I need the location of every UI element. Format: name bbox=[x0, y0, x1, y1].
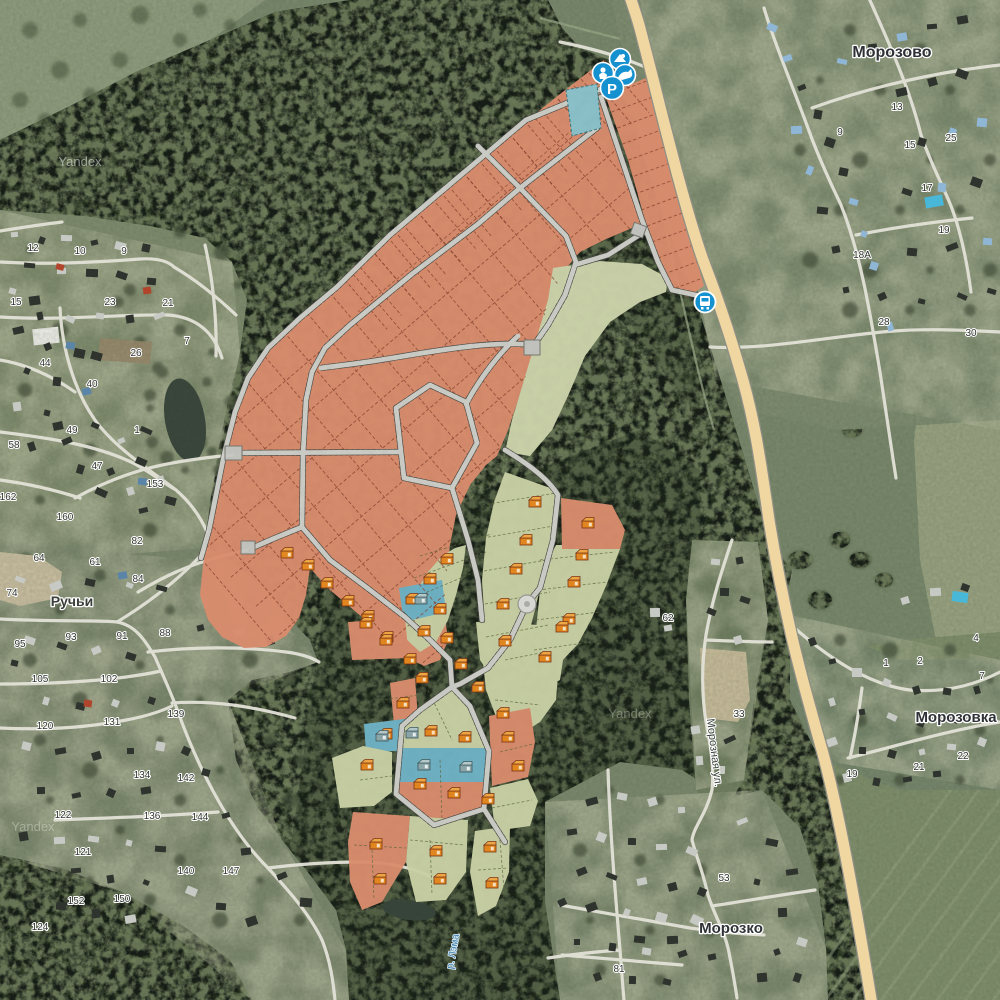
svg-text:91: 91 bbox=[116, 631, 128, 642]
svg-text:Yandex: Yandex bbox=[11, 819, 55, 834]
svg-text:40: 40 bbox=[86, 379, 98, 390]
svg-text:21: 21 bbox=[913, 762, 925, 773]
svg-text:Морозко: Морозко bbox=[699, 920, 763, 937]
svg-text:9: 9 bbox=[837, 127, 843, 138]
svg-text:95: 95 bbox=[14, 639, 26, 650]
svg-text:2: 2 bbox=[917, 656, 923, 667]
svg-text:142: 142 bbox=[178, 773, 195, 784]
svg-text:140: 140 bbox=[178, 866, 195, 877]
svg-text:19: 19 bbox=[938, 225, 950, 236]
svg-text:9: 9 bbox=[121, 246, 127, 257]
svg-text:124: 124 bbox=[32, 922, 49, 933]
svg-text:53: 53 bbox=[718, 873, 730, 884]
svg-text:102: 102 bbox=[101, 674, 118, 685]
svg-text:30: 30 bbox=[965, 328, 977, 339]
svg-text:147: 147 bbox=[223, 866, 240, 877]
svg-text:33: 33 bbox=[733, 709, 745, 720]
svg-text:144: 144 bbox=[192, 812, 209, 823]
svg-text:10: 10 bbox=[74, 246, 86, 257]
svg-text:17: 17 bbox=[921, 183, 933, 194]
svg-text:12: 12 bbox=[27, 243, 39, 254]
svg-text:1: 1 bbox=[883, 658, 889, 669]
svg-text:121: 121 bbox=[75, 847, 92, 858]
svg-text:136: 136 bbox=[144, 811, 161, 822]
svg-text:1: 1 bbox=[134, 425, 140, 436]
svg-text:7: 7 bbox=[184, 336, 190, 347]
svg-text:58: 58 bbox=[8, 440, 20, 451]
svg-text:44: 44 bbox=[39, 358, 51, 369]
svg-text:13: 13 bbox=[891, 102, 903, 113]
svg-text:15: 15 bbox=[904, 140, 916, 151]
svg-text:134: 134 bbox=[134, 770, 151, 781]
svg-text:82: 82 bbox=[131, 536, 143, 547]
svg-text:15: 15 bbox=[10, 297, 22, 308]
svg-text:105: 105 bbox=[32, 674, 49, 685]
svg-text:21: 21 bbox=[162, 298, 174, 309]
svg-text:Yandex: Yandex bbox=[58, 154, 102, 169]
svg-text:62: 62 bbox=[662, 613, 674, 624]
svg-text:61: 61 bbox=[89, 557, 101, 568]
svg-text:153: 153 bbox=[147, 479, 164, 490]
svg-text:122: 122 bbox=[55, 810, 72, 821]
svg-text:18А: 18А bbox=[853, 250, 871, 261]
svg-text:47: 47 bbox=[91, 461, 103, 472]
svg-text:93: 93 bbox=[65, 632, 77, 643]
svg-text:88: 88 bbox=[159, 628, 171, 639]
svg-text:162: 162 bbox=[0, 492, 17, 503]
svg-text:25: 25 bbox=[945, 133, 957, 144]
svg-text:160: 160 bbox=[57, 512, 74, 523]
svg-text:150: 150 bbox=[114, 894, 131, 905]
svg-text:Морозовка: Морозовка bbox=[915, 709, 997, 726]
svg-text:74: 74 bbox=[6, 588, 18, 599]
svg-text:22: 22 bbox=[957, 751, 969, 762]
svg-text:26: 26 bbox=[130, 348, 142, 359]
svg-text:Морозово: Морозово bbox=[852, 44, 931, 61]
svg-text:7: 7 bbox=[979, 671, 985, 682]
svg-text:19: 19 bbox=[846, 769, 858, 780]
svg-text:4: 4 bbox=[973, 633, 979, 644]
svg-text:28: 28 bbox=[878, 317, 890, 328]
svg-text:64: 64 bbox=[33, 553, 45, 564]
svg-text:81: 81 bbox=[613, 964, 625, 975]
svg-text:84: 84 bbox=[132, 574, 144, 585]
svg-text:Ручьи: Ручьи bbox=[51, 593, 93, 609]
svg-text:152: 152 bbox=[68, 896, 85, 907]
svg-text:49: 49 bbox=[66, 425, 78, 436]
svg-text:23: 23 bbox=[104, 297, 116, 308]
svg-text:131: 131 bbox=[104, 717, 121, 728]
svg-text:120: 120 bbox=[37, 721, 54, 732]
svg-text:139: 139 bbox=[168, 709, 185, 720]
svg-text:P: P bbox=[607, 81, 617, 98]
svg-text:Yandex: Yandex bbox=[608, 706, 652, 721]
